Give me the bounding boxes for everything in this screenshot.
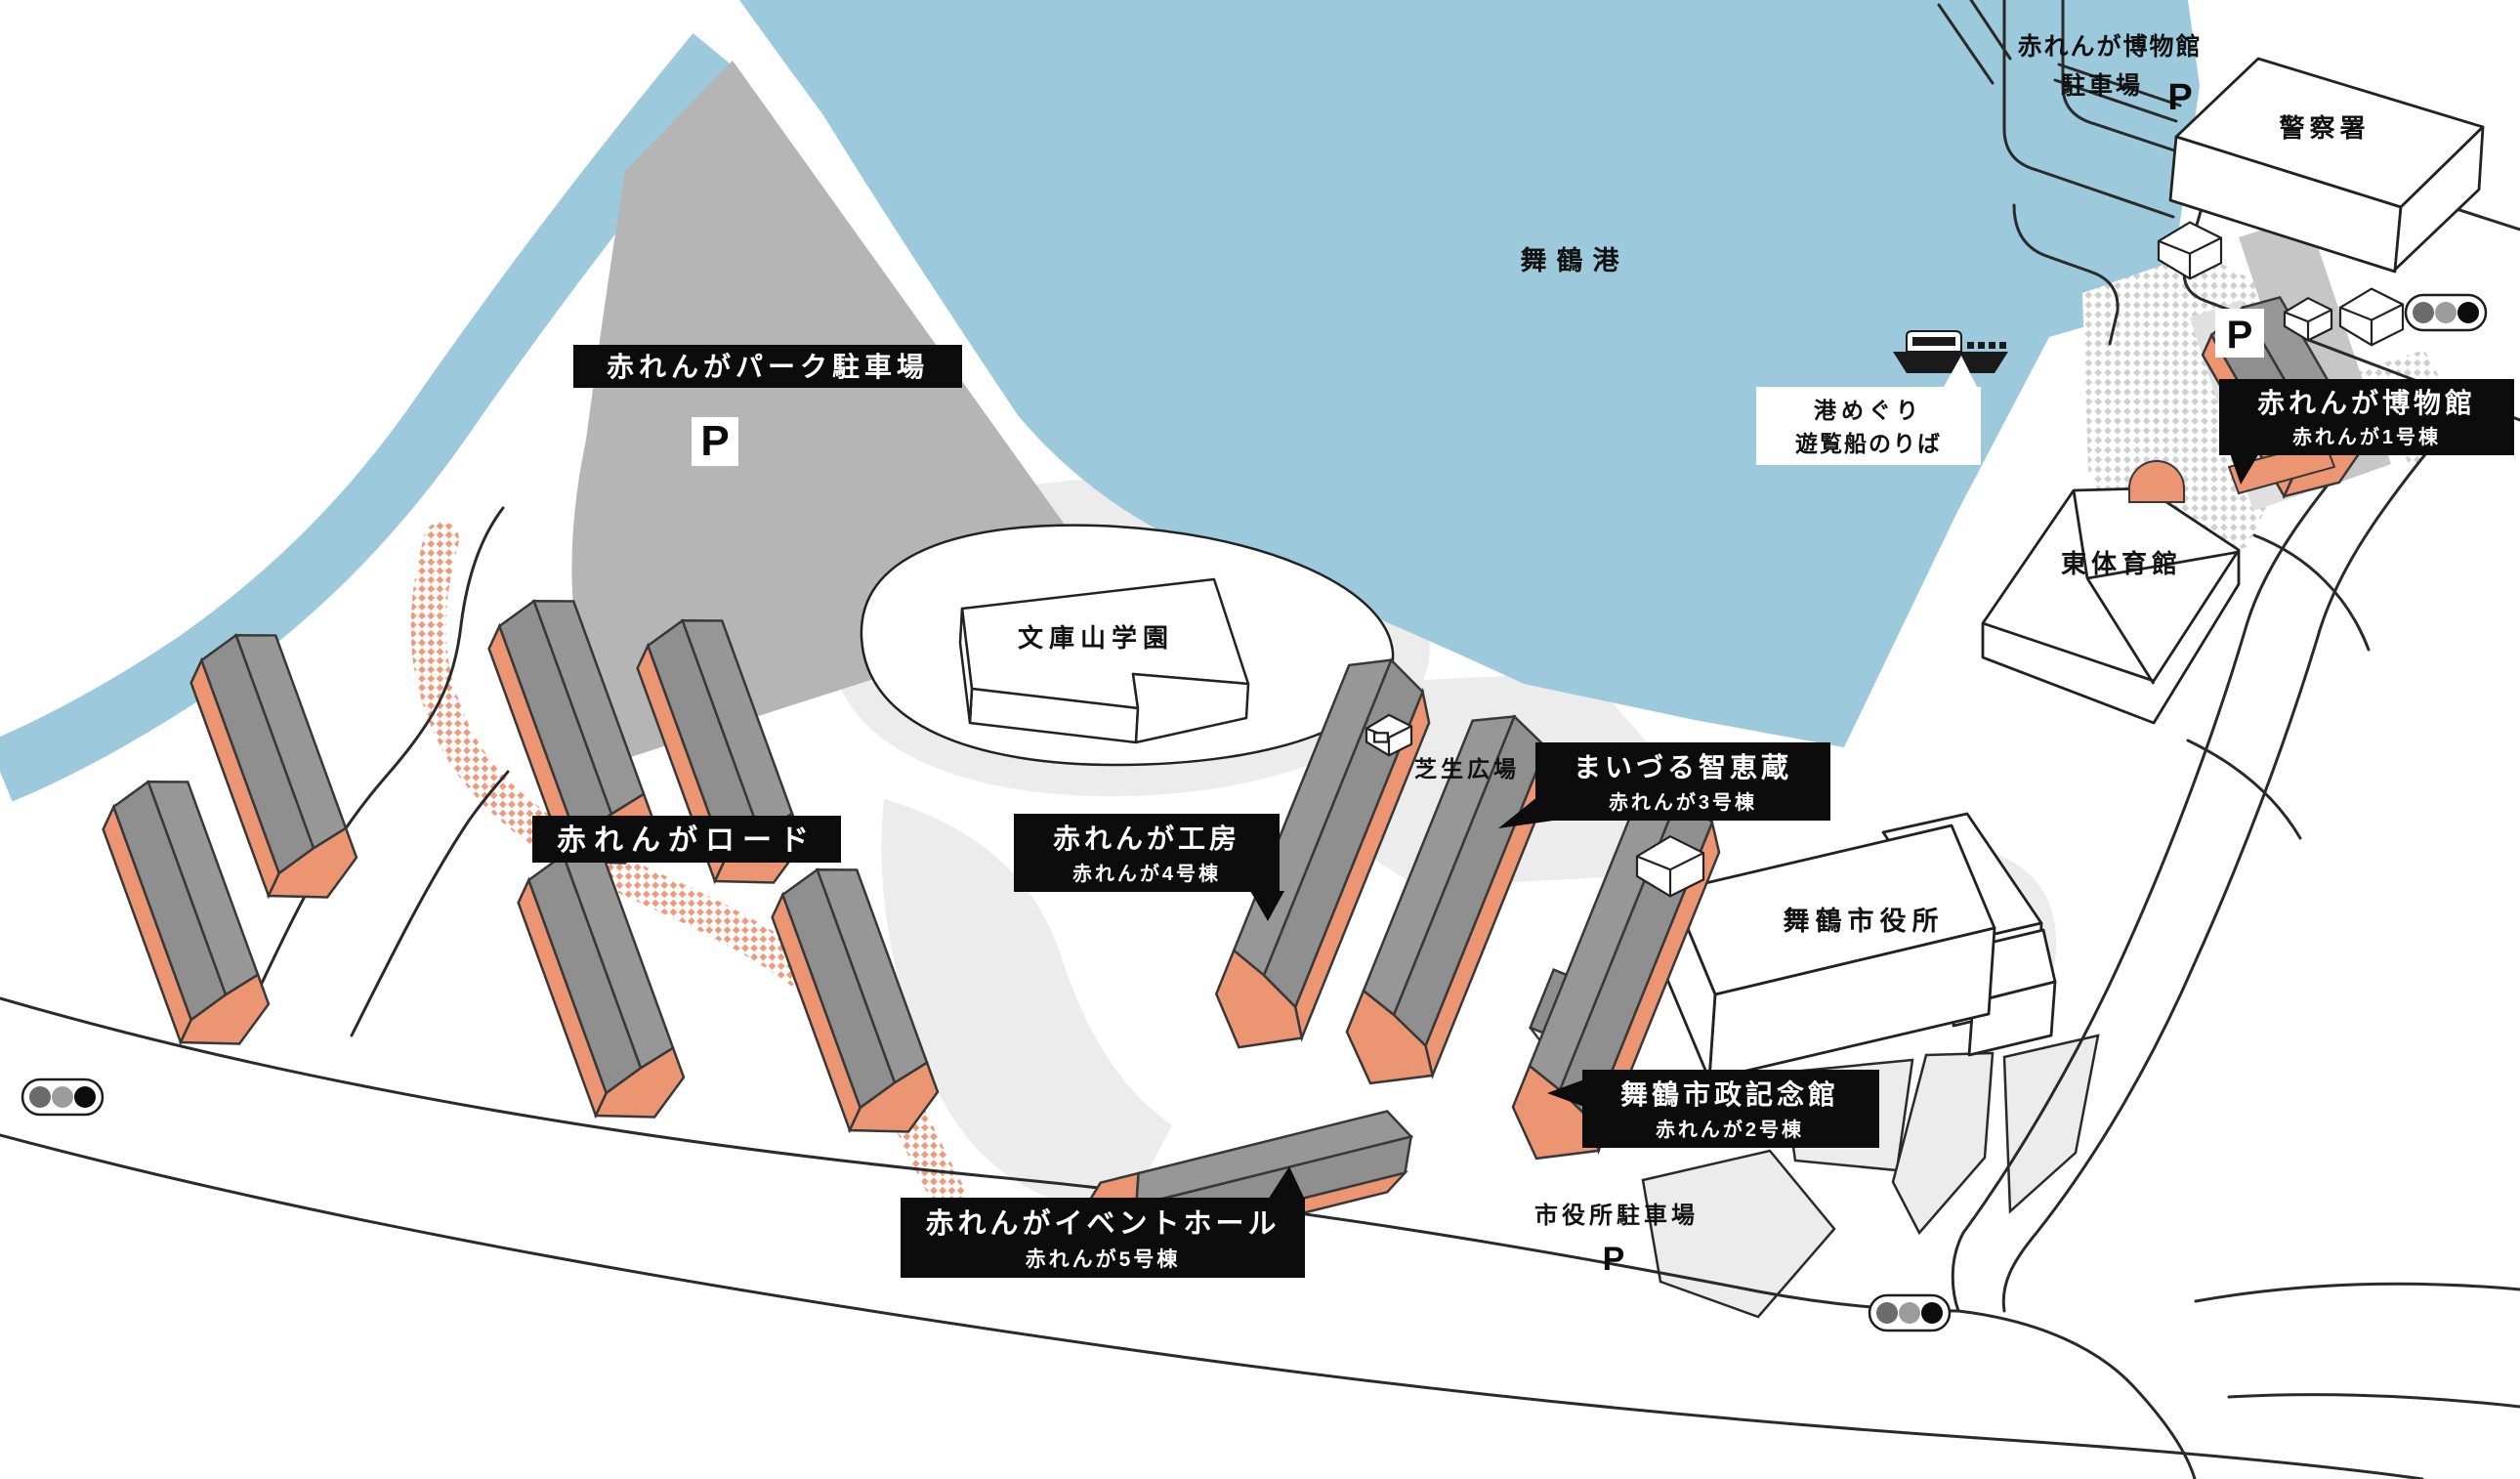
svg-text:赤れんが1号棟: 赤れんが1号棟 [2292,425,2441,448]
svg-text:赤れんがロード: 赤れんがロード [557,824,817,857]
svg-text:赤れんがパーク駐車場: 赤れんがパーク駐車場 [607,351,929,382]
harbor-label: 舞鶴港 [1521,245,1629,275]
parking-marker-park: P [692,417,738,466]
gymnasium-label: 東体育館 [2061,549,2182,578]
label-chiekura: まいづる智恵蔵 赤れんが3号棟 [1498,742,1830,828]
city-hall-label: 舞鶴市役所 [1784,906,1945,936]
svg-text:赤れんが工房: 赤れんが工房 [1053,823,1240,854]
gymnasium-building [1983,488,2239,723]
label-brick-road: 赤れんがロード [532,816,841,863]
parking-marker-museum-lot: P [2167,77,2192,118]
svg-text:P: P [700,417,729,465]
maizuru-map-svg: 舞鶴港 文庫山学園 芝生広場 舞鶴市役所 東体育館 警察署 赤れんが博物館 駐車… [0,0,2520,1479]
svg-text:港めぐり: 港めぐり [1814,398,1923,423]
svg-text:舞鶴市政記念館: 舞鶴市政記念館 [1620,1078,1839,1110]
bunkozan-label: 文庫山学園 [1018,623,1174,653]
label-park-parking: 赤れんがパーク駐車場 [573,345,962,388]
city-hall-building [1666,814,2055,1079]
svg-text:赤れんが3号棟: 赤れんが3号棟 [1609,790,1757,814]
lawn-plaza-label: 芝生広場 [1414,756,1520,782]
cityhall-parking-label: 市役所駐車場 [1534,1202,1699,1229]
museum-parking-label-line1: 赤れんが博物館 [2017,32,2202,61]
label-kinenkan: 舞鶴市政記念館 赤れんが2号棟 [1547,1070,1879,1148]
traffic-light-icon-southwest [22,1079,103,1115]
svg-text:まいづる智恵蔵: まいづる智恵蔵 [1574,752,1792,782]
museum-parking-label-line2: 駐車場 [2061,71,2143,100]
svg-text:P: P [2227,314,2253,357]
svg-text:赤れんが5号棟: 赤れんが5号棟 [1026,1247,1181,1271]
svg-text:赤れんがイベントホール: 赤れんがイベントホール [925,1206,1280,1240]
parking-marker-cityhall-lot: P [1603,1241,1625,1278]
small-house-pier-2 [2340,289,2403,346]
svg-text:赤れんが4号棟: 赤れんが4号棟 [1072,862,1221,885]
parking-marker-pier: P [2215,309,2264,358]
label-kobo: 赤れんが工房 赤れんが4号棟 [1014,814,1284,921]
svg-text:赤れんが2号棟: 赤れんが2号棟 [1656,1118,1804,1141]
map-canvas: 舞鶴港 文庫山学園 芝生広場 舞鶴市役所 東体育館 警察署 赤れんが博物館 駐車… [0,0,2520,1479]
svg-text:遊覧船のりば: 遊覧船のりば [1795,431,1942,456]
svg-text:赤れんが博物館: 赤れんが博物館 [2257,387,2476,418]
traffic-light-icon-south [1869,1295,1950,1331]
traffic-light-icon-northeast [2406,295,2486,330]
bunkozan-building [960,579,1248,742]
police-label: 警察署 [2279,113,2370,143]
